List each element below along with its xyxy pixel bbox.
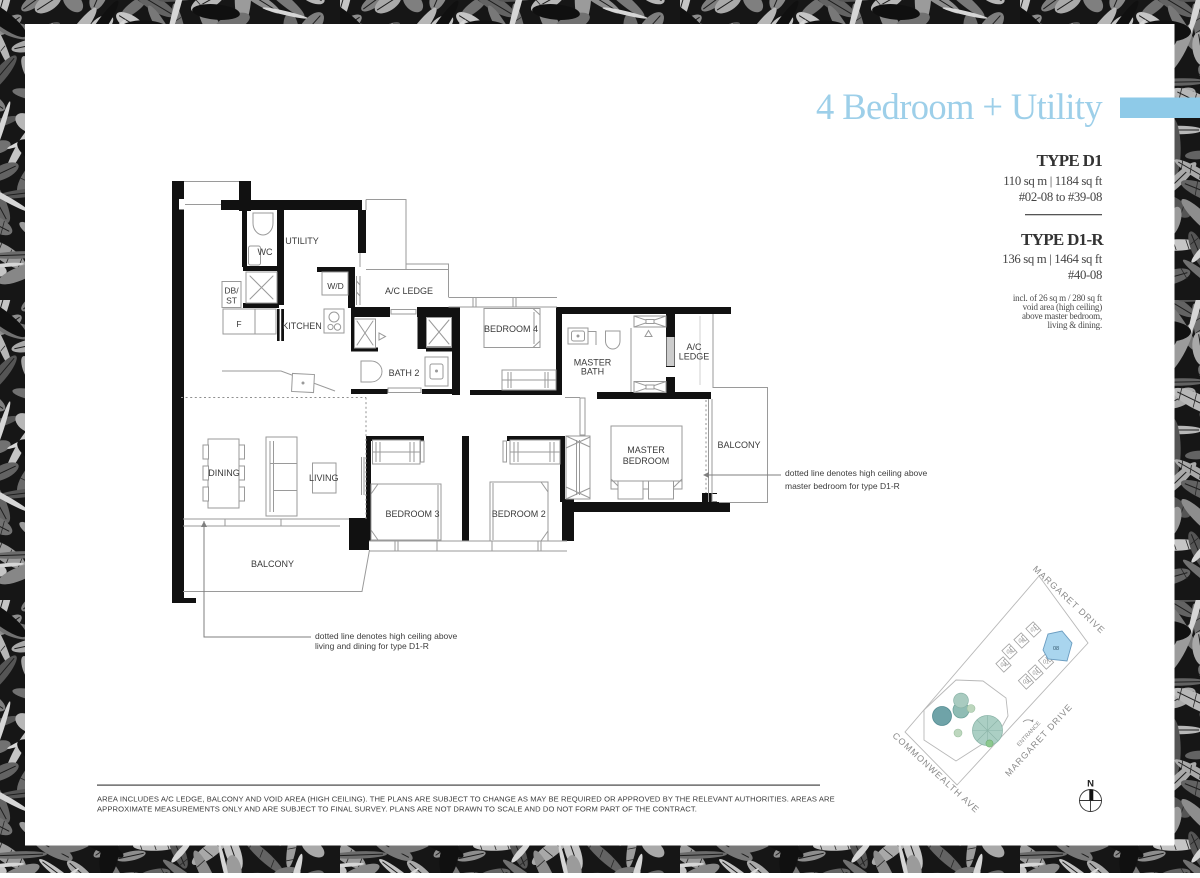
svg-text:master bedroom for type D1-R: master bedroom for type D1-R xyxy=(785,481,900,491)
svg-text:APPROXIMATE MEASUREMENTS ONLY: APPROXIMATE MEASUREMENTS ONLY AND ARE SU… xyxy=(97,805,697,814)
svg-text:UTILITY: UTILITY xyxy=(285,236,319,246)
svg-text:W/D: W/D xyxy=(327,281,344,291)
svg-text:01: 01 xyxy=(1043,660,1049,666)
svg-text:BEDROOM 2: BEDROOM 2 xyxy=(492,509,546,519)
svg-text:BEDROOM: BEDROOM xyxy=(623,456,670,466)
svg-text:LEDGE: LEDGE xyxy=(679,352,710,362)
svg-text:DINING: DINING xyxy=(208,468,240,478)
svg-text:BALCONY: BALCONY xyxy=(717,440,760,450)
svg-text:N: N xyxy=(1087,779,1094,790)
svg-text:07: 07 xyxy=(1030,628,1036,634)
svg-text:#40-08: #40-08 xyxy=(1068,268,1102,282)
svg-text:4 Bedroom + Utility: 4 Bedroom + Utility xyxy=(816,86,1103,127)
svg-text:DB/: DB/ xyxy=(224,286,239,296)
svg-text:03: 03 xyxy=(1023,680,1029,686)
svg-text:136 sq m | 1464 sq ft: 136 sq m | 1464 sq ft xyxy=(1002,252,1103,266)
svg-text:dotted line denotes high ceili: dotted line denotes high ceiling above xyxy=(315,631,458,641)
svg-text:TYPE D1: TYPE D1 xyxy=(1037,151,1103,170)
svg-text:KITCHEN: KITCHEN xyxy=(282,321,322,331)
svg-text:AREA INCLUDES A/C LEDGE, BALCO: AREA INCLUDES A/C LEDGE, BALCONY AND VOI… xyxy=(97,795,835,804)
svg-text:living & dining.: living & dining. xyxy=(1047,320,1102,330)
svg-text:living and dining for type D1-: living and dining for type D1-R xyxy=(315,641,429,651)
svg-text:A/C: A/C xyxy=(686,342,702,352)
svg-text:04: 04 xyxy=(1000,663,1006,669)
svg-text:A/C LEDGE: A/C LEDGE xyxy=(385,286,433,296)
svg-text:F: F xyxy=(236,319,241,329)
svg-text:08: 08 xyxy=(1053,646,1059,652)
svg-text:05: 05 xyxy=(1006,650,1012,656)
svg-text:ST: ST xyxy=(226,296,237,306)
svg-text:BALCONY: BALCONY xyxy=(251,559,294,569)
svg-text:TYPE D1-R: TYPE D1-R xyxy=(1021,230,1104,249)
svg-text:BEDROOM 4: BEDROOM 4 xyxy=(484,324,538,334)
svg-text:110 sq m | 1184 sq ft: 110 sq m | 1184 sq ft xyxy=(1003,174,1103,188)
svg-text:dotted line denotes high ceili: dotted line denotes high ceiling above xyxy=(785,468,928,478)
svg-text:06: 06 xyxy=(1018,639,1024,645)
svg-text:MASTER: MASTER xyxy=(627,445,665,455)
svg-text:BEDROOM 3: BEDROOM 3 xyxy=(385,509,439,519)
svg-text:#02-08 to #39-08: #02-08 to #39-08 xyxy=(1019,190,1102,204)
svg-text:BATH 2: BATH 2 xyxy=(389,368,420,378)
svg-text:WC: WC xyxy=(258,247,273,257)
svg-text:BATH: BATH xyxy=(581,367,604,377)
svg-text:02: 02 xyxy=(1032,671,1038,677)
svg-text:LIVING: LIVING xyxy=(309,473,339,483)
